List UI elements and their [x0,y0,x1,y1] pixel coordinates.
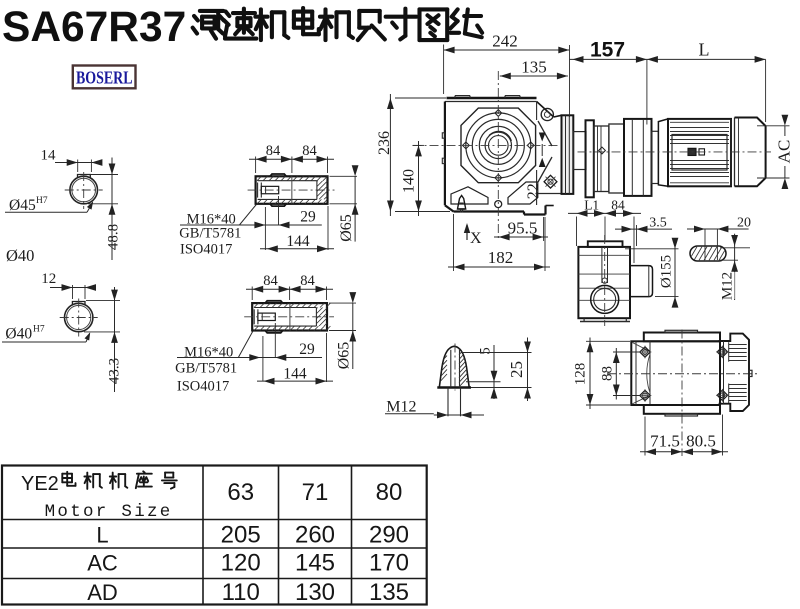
svg-text:84: 84 [300,273,315,289]
svg-text:205: 205 [221,522,261,549]
svg-text:BOSERL: BOSERL [76,68,133,88]
svg-text:144: 144 [283,365,307,382]
svg-text:X: X [470,230,482,247]
svg-text:29: 29 [300,209,316,226]
svg-text:22: 22 [525,183,542,199]
svg-text:12: 12 [41,271,56,287]
svg-text:157: 157 [590,39,625,62]
svg-text:144: 144 [286,233,310,250]
svg-text:Ø40: Ø40 [5,326,32,343]
svg-text:Motor Size: Motor Size [45,502,173,522]
svg-text:260: 260 [295,522,335,549]
svg-text:29: 29 [299,341,315,358]
svg-text:84: 84 [266,143,281,159]
svg-text:290: 290 [369,522,409,549]
svg-text:84: 84 [263,273,278,289]
svg-text:140: 140 [401,169,418,193]
svg-text:135: 135 [369,579,409,606]
svg-text:130: 130 [295,579,335,606]
svg-text:182: 182 [488,248,514,267]
svg-text:L: L [96,523,108,548]
svg-text:236: 236 [376,131,393,155]
svg-text:L: L [699,40,710,60]
svg-text:Ø65: Ø65 [336,342,353,370]
svg-text:242: 242 [492,32,518,51]
svg-text:84: 84 [611,198,625,213]
svg-text:145: 145 [295,550,335,577]
svg-text:AC: AC [775,140,794,164]
svg-text:63: 63 [227,479,254,506]
svg-text:95.5: 95.5 [508,218,538,237]
svg-text:YE2: YE2 [21,473,59,495]
svg-text:128: 128 [573,363,589,386]
svg-text:H7: H7 [33,325,45,335]
svg-text:120: 120 [221,550,261,577]
svg-text:Ø40: Ø40 [6,246,34,265]
svg-text:ISO4017: ISO4017 [180,242,232,258]
svg-text:Ø155: Ø155 [659,255,675,288]
svg-text:84: 84 [302,143,317,159]
svg-text:80: 80 [376,479,403,506]
svg-text:Ø65: Ø65 [338,214,355,242]
svg-text:170: 170 [369,550,409,577]
svg-text:43.3: 43.3 [107,358,123,384]
svg-text:80.5: 80.5 [686,432,716,451]
svg-text:GB/T5781: GB/T5781 [175,360,237,376]
svg-text:M12: M12 [386,399,416,416]
svg-text:M12: M12 [720,272,736,300]
svg-text:20: 20 [737,216,751,231]
svg-text:AD: AD [87,580,118,605]
svg-text:135: 135 [521,58,547,77]
svg-text:110: 110 [222,579,260,606]
svg-text:L1: L1 [584,198,599,213]
svg-text:SA67R37: SA67R37 [2,4,186,51]
svg-text:Ø45: Ø45 [9,197,36,214]
svg-text:GB/T5781: GB/T5781 [179,225,241,241]
svg-text:25: 25 [507,361,526,378]
svg-text:AC: AC [87,551,118,576]
svg-text:H7: H7 [36,196,48,206]
svg-text:71: 71 [302,479,329,506]
svg-text:71.5: 71.5 [650,432,680,451]
svg-text:ISO4017: ISO4017 [177,379,229,395]
svg-text:48.8: 48.8 [106,224,122,250]
svg-text:5: 5 [478,347,494,355]
svg-text:88: 88 [600,366,616,381]
svg-text:3.5: 3.5 [649,216,667,231]
svg-text:14: 14 [41,148,57,164]
